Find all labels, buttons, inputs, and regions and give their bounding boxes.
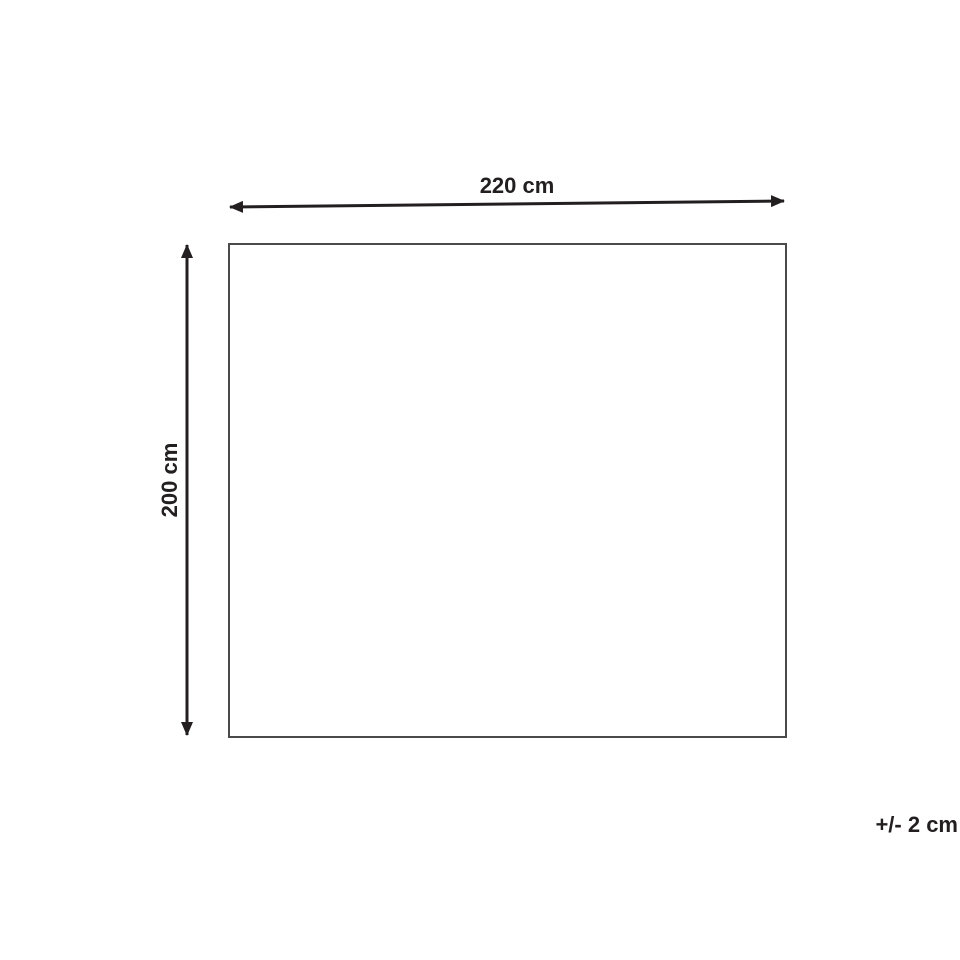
tolerance-label: +/- 2 cm [798,813,958,837]
dimension-diagram: 220 cm 200 cm +/- 2 cm [0,0,960,960]
width-dimension-arrow [230,201,784,207]
product-outline-rectangle [228,243,787,738]
width-dimension-label: 220 cm [437,174,597,198]
height-dimension-label: 200 cm [158,400,182,560]
